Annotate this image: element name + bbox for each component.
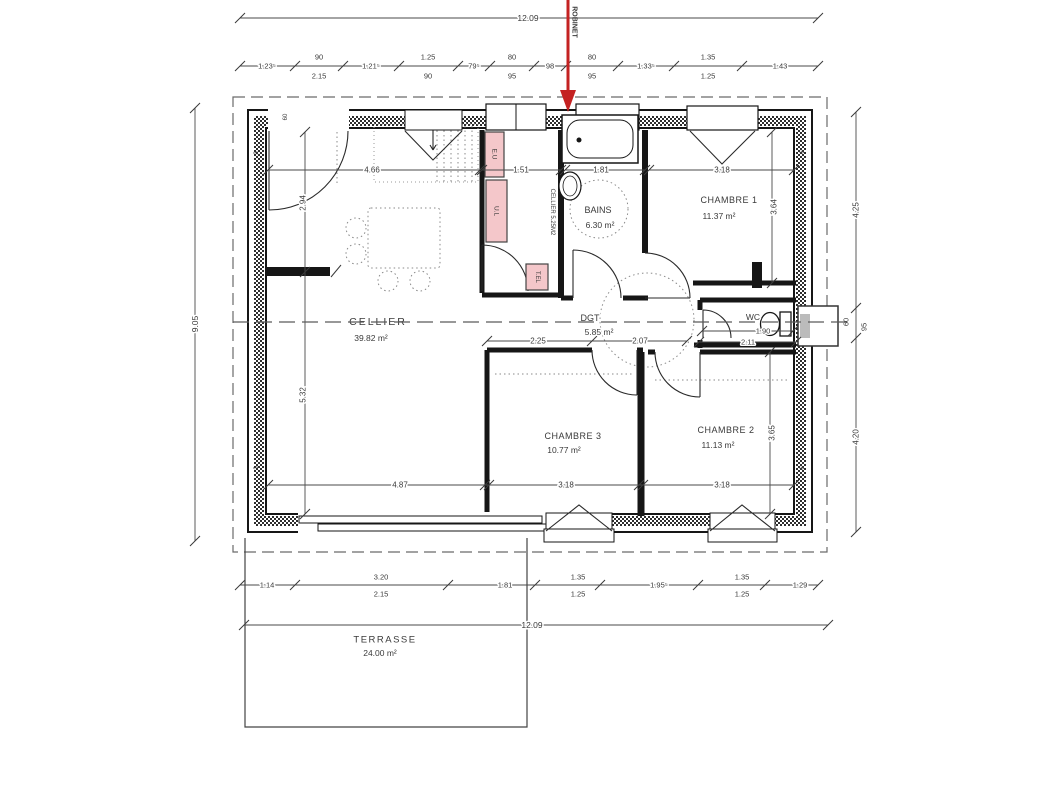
area-bains: 6.30 m² — [586, 220, 615, 230]
dim-right-4-20: 4.20 — [852, 429, 861, 445]
dim-int-4-66: 4.66 — [364, 166, 380, 175]
dim-bot-1-35a: 1.35 — [571, 573, 586, 582]
dim-int-1-51: 1.51 — [513, 166, 529, 175]
floor-plan: 12.099.0512.094.2560954.201.23⁵902.151.2… — [0, 0, 1043, 800]
dim-int-5-32: 5.32 — [299, 387, 308, 403]
equip-tel: T.EL — [534, 271, 540, 284]
dim-bot-1-35b: 1.35 — [735, 573, 750, 582]
floor-plan-page: 12.099.0512.094.2560954.201.23⁵902.151.2… — [0, 0, 1043, 800]
dim-int-3-64: 3.64 — [770, 199, 779, 215]
area-dgt: 5.85 m² — [585, 327, 614, 337]
dim-int-2-94: 2.94 — [299, 195, 308, 211]
area-cellier: 39.82 m² — [354, 333, 388, 343]
dim-int-3-18b: 3.18 — [558, 481, 574, 490]
dim-top-98: 98 — [546, 62, 554, 71]
room-chambre-2: CHAMBRE 2 — [697, 425, 754, 435]
terrace-outline — [245, 538, 527, 727]
sink — [559, 172, 581, 200]
arrow-head-icon — [560, 90, 576, 112]
room-chambre-1: CHAMBRE 1 — [700, 195, 757, 205]
dim-int-2-11: 2.11 — [741, 338, 755, 347]
area-chambre-3: 10.77 m² — [547, 445, 581, 455]
dim-overall-width-bottom: 12.09 — [521, 620, 543, 630]
dim-int-1-90: 1.90 — [756, 327, 771, 336]
dim-int-2-25: 2.25 — [530, 337, 546, 346]
equip-eu: E.U — [491, 149, 498, 160]
dim-top-1-235: 1.23⁵ — [258, 62, 276, 71]
marker-60-top-left: 60 — [283, 113, 289, 120]
equip-ul: U.L — [493, 206, 500, 217]
dim-overall-width-top: 12.09 — [517, 13, 539, 23]
dim-bot-1-955: 1.95⁵ — [650, 581, 668, 590]
bathtub — [562, 115, 638, 163]
room-terrasse: TERRASSE — [353, 635, 416, 646]
dim-top-80a: 80 — [508, 53, 516, 62]
area-chambre-2: 11.13 m² — [702, 440, 735, 450]
dim-int-3-18a: 3.18 — [714, 166, 730, 175]
dim-top-95a: 95 — [508, 72, 516, 81]
dim-top-1-335: 1.33⁵ — [637, 62, 655, 71]
robinet-label: ROBINET — [571, 6, 578, 38]
room-cellier-closet: CELLIER 5.25M2 — [549, 189, 555, 236]
dim-top-1-25b: 1.25 — [701, 72, 716, 81]
room-bains: BAINS — [584, 205, 611, 215]
dim-top-90a: 90 — [315, 53, 323, 62]
dim-int-3-65: 3.65 — [768, 425, 777, 441]
dim-top-1-35: 1.35 — [701, 53, 716, 62]
area-chambre-1: 11.37 m² — [703, 211, 736, 221]
dim-bot-1-25b: 1.25 — [735, 590, 750, 599]
sliding-door — [299, 516, 542, 523]
dim-bot-2-15: 2.15 — [374, 590, 389, 599]
dim-right-4-25: 4.25 — [852, 202, 861, 218]
dim-bot-1-29: 1.29 — [793, 581, 808, 590]
dim-top-90b: 90 — [424, 72, 432, 81]
dim-int-2-07: 2.07 — [632, 337, 648, 346]
dim-bot-1-81: 1.81 — [498, 581, 513, 590]
dim-bot-1-14: 1.14 — [260, 581, 275, 590]
dim-top-1-43: 1.43 — [773, 62, 788, 71]
dim-right-95: 95 — [860, 323, 869, 331]
dim-bot-3-20: 3.20 — [374, 573, 389, 582]
dim-top-795: 79⁵ — [468, 62, 479, 71]
dim-top-1-25: 1.25 — [421, 53, 436, 62]
dim-int-1-81: 1.81 — [593, 166, 609, 175]
dim-overall-height-left: 9.05 — [190, 315, 200, 332]
dim-top-2-15: 2.15 — [312, 72, 327, 81]
room-wc: WC — [746, 312, 760, 322]
dim-int-3-18c: 3.18 — [714, 481, 730, 490]
area-terrasse: 24.00 m² — [363, 648, 397, 658]
dim-top-95b: 95 — [588, 72, 596, 81]
dim-bot-1-25a: 1.25 — [571, 590, 586, 599]
dim-top-80b: 80 — [588, 53, 596, 62]
room-chambre-3: CHAMBRE 3 — [544, 431, 601, 441]
dim-int-4-87: 4.87 — [392, 481, 408, 490]
dim-top-1-215: 1.21⁵ — [362, 62, 380, 71]
